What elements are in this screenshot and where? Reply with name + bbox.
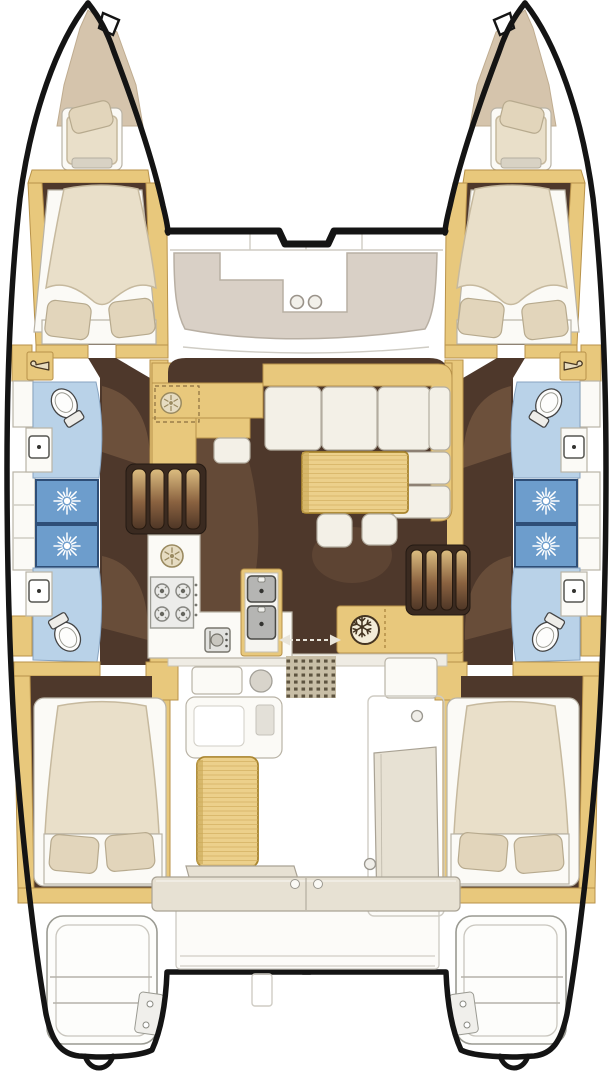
entry-mat: [286, 656, 336, 698]
starboard-staircase: [406, 545, 470, 615]
port-staircase: [126, 464, 206, 534]
cupholder-icon: [309, 296, 322, 309]
cabin-wall-bottom: [18, 888, 170, 903]
saloon-table: [302, 452, 408, 513]
aft-cabin: [14, 662, 178, 903]
foredeck: [170, 233, 443, 353]
sink-island: [241, 569, 282, 656]
swim-platform: [47, 916, 165, 1044]
stool: [362, 514, 397, 545]
cupholder-icon: [291, 296, 304, 309]
cockpit-sideboard: [192, 667, 242, 694]
cabin-wall-aft-right: [116, 345, 168, 358]
side-locker: [13, 381, 33, 427]
cabin-wall-top: [14, 662, 100, 676]
cockpit: [152, 658, 460, 1006]
deck-fitting: [365, 859, 376, 870]
nav-seat: [214, 438, 250, 463]
round-sink: [161, 545, 183, 567]
stool: [317, 514, 352, 547]
shower-stall: [36, 480, 98, 523]
floorplan-canvas: [0, 0, 613, 1080]
starboard-sideboard: [385, 658, 437, 698]
cockpit-round-seat: [250, 670, 272, 692]
sofa-cushion: [322, 387, 377, 450]
double-bed: [45, 702, 159, 835]
aft-bench: [152, 877, 460, 911]
forward-cabin: [28, 170, 168, 358]
sofa-cushion: [265, 387, 321, 450]
forepeak-berth: [62, 99, 122, 170]
pillow: [44, 299, 92, 340]
deck-fitting: [291, 880, 300, 889]
wardrobe: [27, 352, 53, 380]
aft-bathroom: [26, 568, 102, 662]
saloon: [126, 358, 470, 698]
cockpit-console: [186, 697, 282, 758]
pillow: [105, 832, 156, 872]
front-crossbeam: [168, 231, 445, 244]
shower-stall: [36, 525, 98, 567]
oven-icon: [205, 628, 230, 652]
cockpit-table: [197, 757, 258, 867]
forward-lounge-pad: [174, 253, 437, 339]
deck-fitting: [412, 711, 423, 722]
side-shelf: [12, 616, 32, 656]
deck-fitting: [314, 880, 323, 889]
pillow: [49, 834, 100, 874]
aft-platform: [176, 903, 439, 969]
pillow: [108, 297, 156, 338]
sofa-cushion: [378, 387, 430, 450]
side-locker: [13, 472, 35, 570]
sofa-cushion: [429, 387, 450, 450]
forward-bathroom: [26, 382, 102, 478]
bulkhead-wall: [28, 170, 150, 183]
